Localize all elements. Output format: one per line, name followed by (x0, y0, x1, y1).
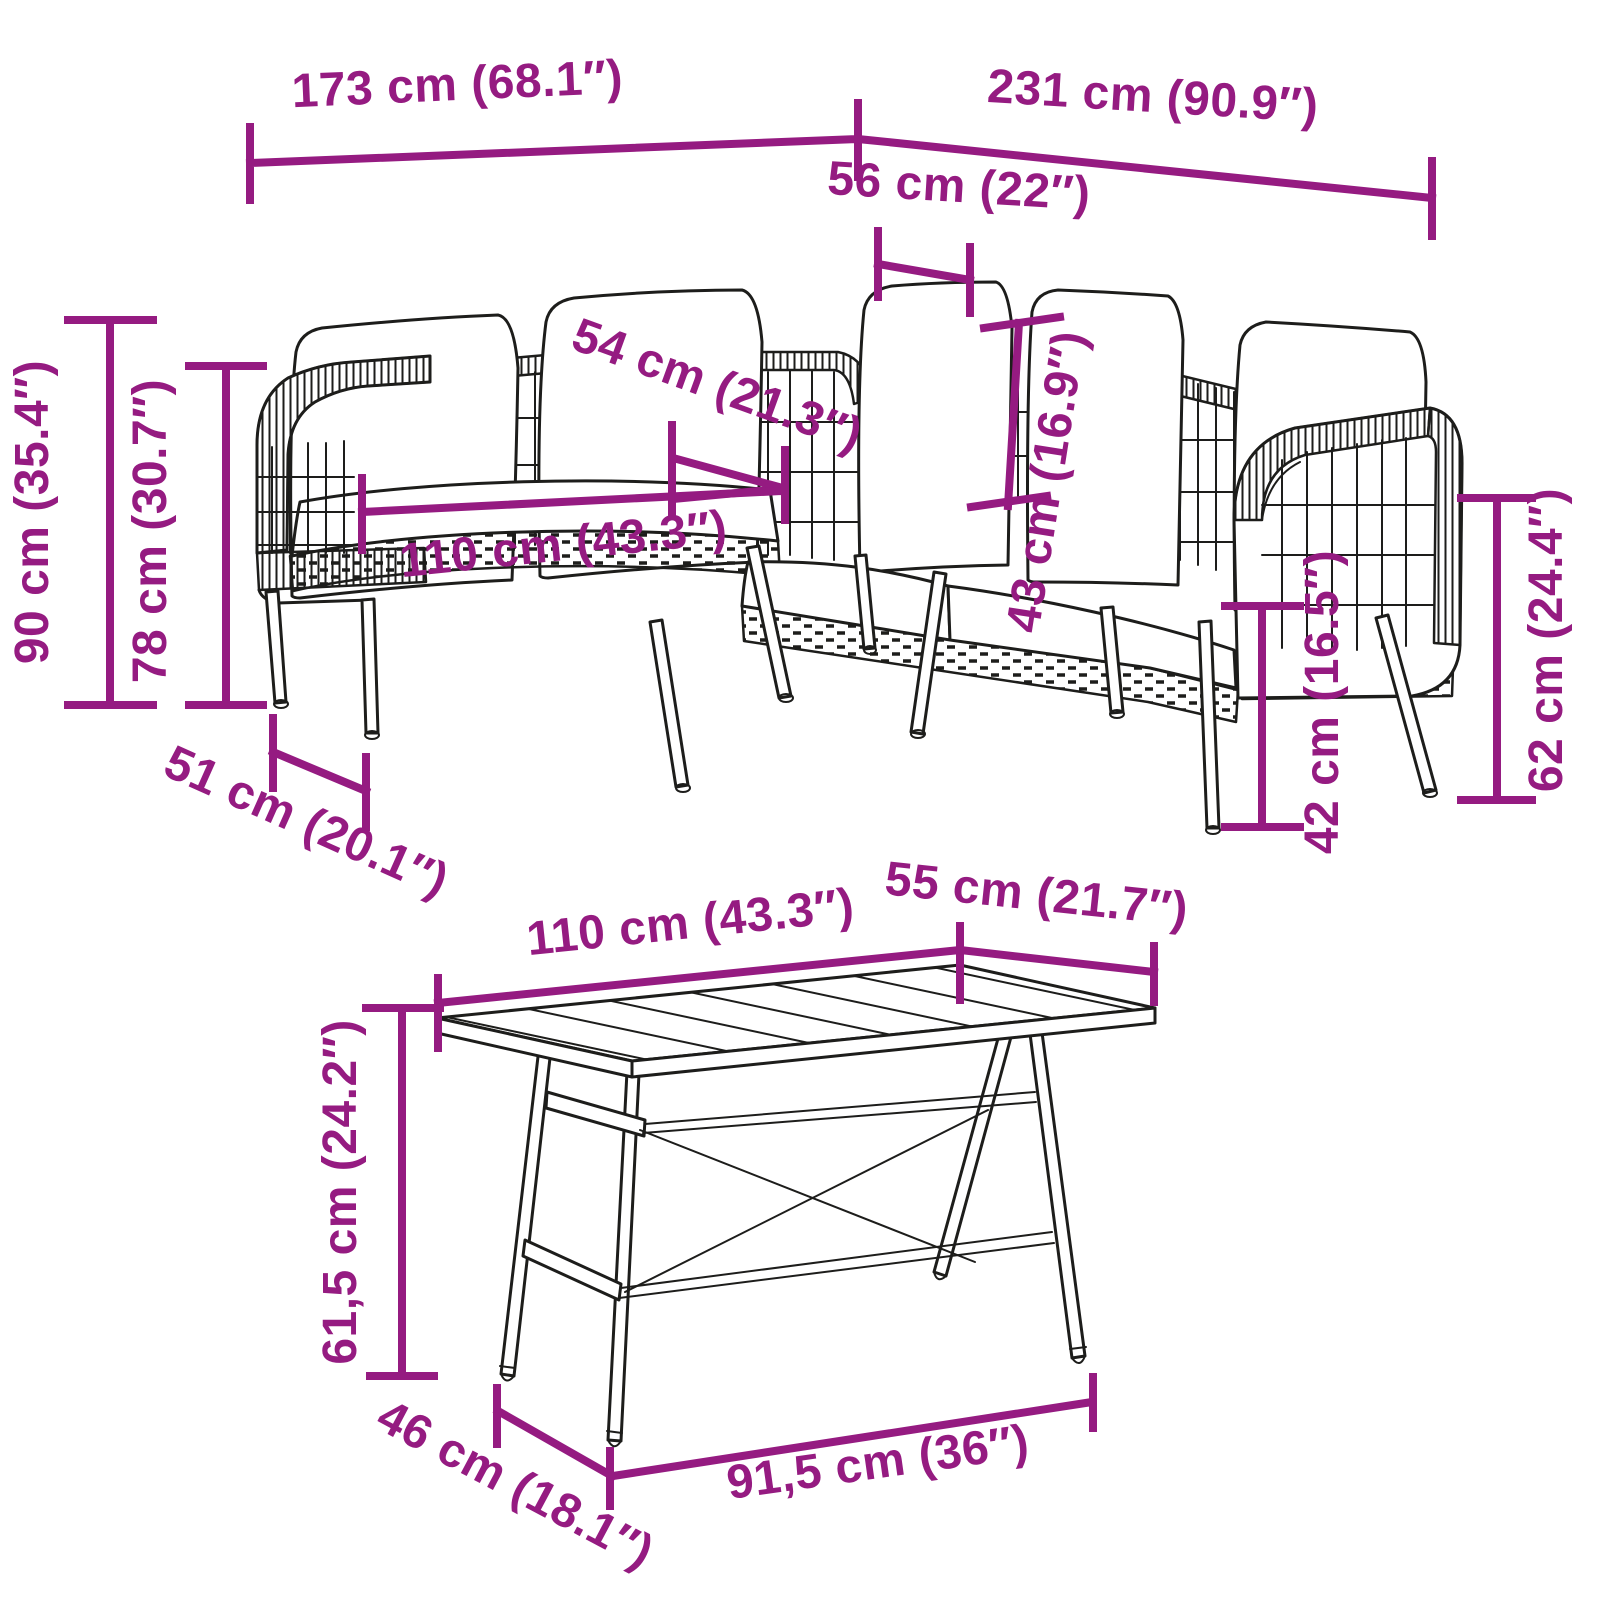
dimension-diagram: 173 cm (68.1″) 231 cm (90.9″) 56 cm (22″… (0, 0, 1600, 1600)
dim-label-sofa-back-height: 78 cm (30.7″) (124, 379, 177, 683)
dim-label-sofa-length-left: 173 cm (68.1″) (291, 51, 625, 118)
table-leg (501, 1048, 551, 1376)
table-legs (500, 1024, 1086, 1446)
dim-sofa-seat-depth: 51 cm (20.1″) (157, 718, 457, 908)
sofa-leg (362, 599, 378, 733)
dim-label-sofa-length-right: 231 cm (90.9″) (986, 60, 1320, 133)
table-brace (619, 1232, 1054, 1298)
dimension-line (250, 103, 858, 200)
dim-label-table-height: 61,5 cm (24.2″) (314, 1019, 367, 1364)
table-leg (1029, 1025, 1085, 1358)
diagram-canvas: 173 cm (68.1″) 231 cm (90.9″) 56 cm (22″… (0, 0, 1600, 1600)
sofa-leg (650, 620, 688, 787)
dim-sofa-back-height: 78 cm (30.7″) (124, 366, 263, 705)
dim-label-sofa-seat-height: 42 cm (16.5″) (1296, 550, 1349, 854)
sofa-leg (266, 591, 286, 703)
dim-sofa-length-left: 173 cm (68.1″) (250, 51, 858, 200)
table-drawing (437, 965, 1155, 1446)
dimension-line (189, 366, 263, 705)
dim-sofa-armrest-height: 62 cm (24.4″) (1461, 488, 1573, 800)
dimension-line (366, 1008, 440, 1376)
dim-label-table-leg-span-length: 91,5 cm (36″) (723, 1415, 1032, 1510)
table-stretcher (523, 1240, 621, 1300)
dim-label-table-top-width: 55 cm (21.7″) (883, 852, 1191, 937)
dim-label-table-top-length: 110 cm (43.3″) (524, 879, 857, 966)
dim-label-sofa-total-height: 90 cm (35.4″) (6, 360, 59, 664)
dim-label-sofa-seat-depth: 51 cm (20.1″) (157, 736, 457, 908)
dim-table-leg-span-length: 91,5 cm (36″) (613, 1377, 1093, 1510)
dim-table-height: 61,5 cm (24.2″) (314, 1008, 440, 1376)
dim-label-sofa-armrest-height: 62 cm (24.4″) (1520, 488, 1573, 792)
